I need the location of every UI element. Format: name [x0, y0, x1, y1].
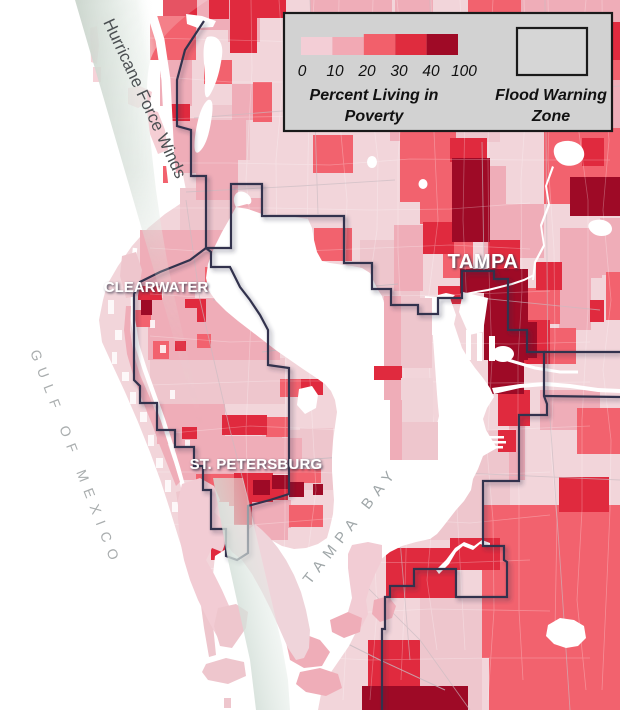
svg-text:100: 100 [451, 63, 477, 80]
svg-text:30: 30 [390, 63, 408, 80]
svg-text:10: 10 [326, 63, 344, 80]
svg-text:CLEARWATER: CLEARWATER [104, 279, 209, 296]
svg-text:Zone: Zone [531, 108, 570, 125]
svg-text:Poverty: Poverty [345, 108, 405, 125]
svg-text:Flood Warning: Flood Warning [495, 87, 607, 104]
svg-text:20: 20 [357, 63, 376, 80]
svg-text:40: 40 [422, 63, 440, 80]
svg-text:0: 0 [298, 63, 307, 80]
svg-text:ST. PETERSBURG: ST. PETERSBURG [190, 456, 323, 473]
svg-text:TAMPA: TAMPA [448, 251, 519, 273]
svg-text:Percent Living in: Percent Living in [310, 87, 439, 104]
